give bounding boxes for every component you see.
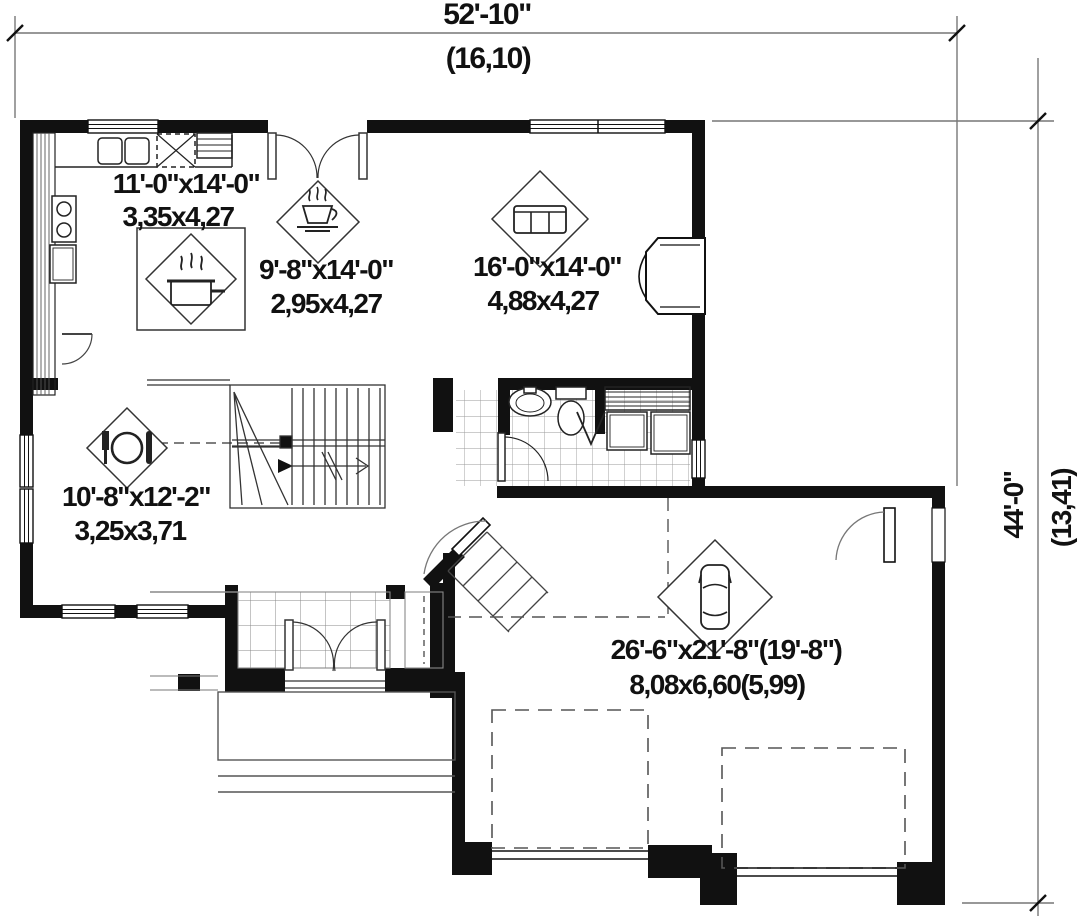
overhead-door-2-dashed: [722, 748, 905, 868]
garage-size-imperial: 26'-6"x21'-8"(19'-8"): [611, 636, 842, 664]
ceiling-break-dashed: [448, 498, 668, 617]
kitchen-size-imperial: 11'-0"x14'-0": [113, 170, 259, 198]
top-dimension-imperial: 52'-10": [443, 0, 531, 30]
kitchen-size-metric: 3,35x4,27: [122, 203, 233, 231]
garage-size-metric: 8,08x6,60(5,99): [629, 671, 804, 699]
right-dimension-imperial: 44'-0": [1000, 472, 1028, 539]
pantry-door: [62, 334, 92, 364]
right-dimension-metric: (13,41): [1048, 469, 1076, 547]
plate-cutlery-icon: [87, 408, 167, 488]
laundry-window: [692, 440, 705, 478]
dinette-size-imperial: 9'-8"x14'-0": [259, 256, 393, 284]
living-size-metric: 4,88x4,27: [487, 287, 598, 315]
stove: [52, 196, 76, 242]
foyer-tile-floor: [238, 592, 390, 668]
dining-side-window-2: [20, 489, 33, 543]
fridge: [50, 245, 76, 283]
kitchen-sink-window: [88, 120, 158, 133]
top-dimension-metric: (16,10): [446, 44, 531, 74]
garage-side-doorway: [932, 508, 945, 562]
living-size-imperial: 16'-0"x14'-0": [473, 253, 621, 281]
dining-size-imperial: 10'-8"x12'-2": [62, 483, 210, 511]
floor-plan-canvas: [0, 0, 1080, 922]
range-hood: [197, 133, 232, 158]
living-room-window: [530, 120, 665, 133]
washer: [607, 412, 647, 450]
dryer: [651, 412, 690, 454]
floor-plan-page: 52'-10" (16,10) 44'-0" (13,41) 11'-0"x14…: [0, 0, 1080, 922]
dining-front-window-1: [62, 605, 115, 618]
dining-front-window-2: [137, 605, 188, 618]
coffee-cup-icon: [277, 181, 359, 263]
garage-entry-door: [424, 518, 490, 574]
newel-post: [280, 436, 292, 448]
dining-side-window-1: [20, 435, 33, 487]
cooking-pot-icon: [146, 234, 236, 324]
kitchen-sink: [125, 138, 149, 164]
dining-size-metric: 3,25x3,71: [74, 517, 185, 545]
bathroom-sink: [509, 387, 551, 416]
garage-side-door: [836, 508, 895, 562]
walls: [20, 120, 945, 905]
kitchen-sink: [98, 138, 122, 164]
toilet: [556, 387, 586, 435]
fireplace: [639, 238, 705, 314]
overhead-door-1-dashed: [492, 710, 648, 848]
porch-steps: [150, 676, 455, 792]
patio-double-door: [268, 133, 367, 179]
dishwasher-x: [157, 134, 195, 167]
dinette-size-metric: 2,95x4,27: [270, 290, 381, 318]
